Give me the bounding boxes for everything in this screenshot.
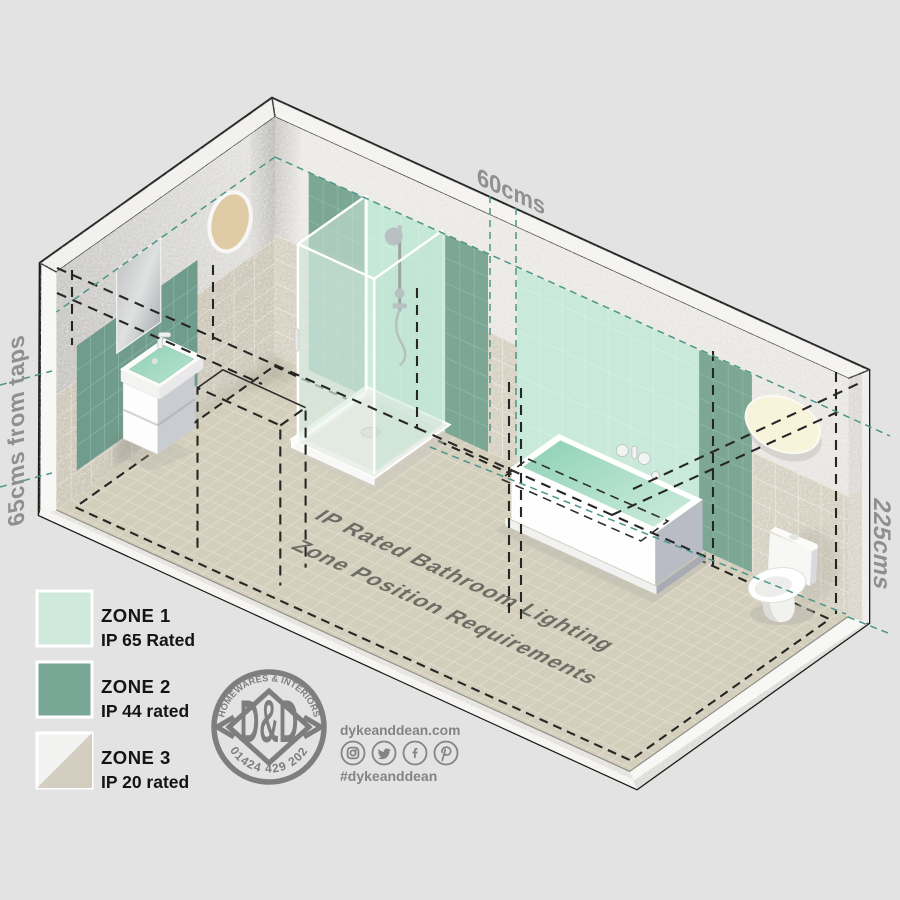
svg-text:IP 20 rated: IP 20 rated [101, 772, 189, 792]
svg-text:ZONE 2: ZONE 2 [101, 676, 171, 697]
svg-text:dykeanddean.com: dykeanddean.com [340, 723, 460, 738]
svg-text:IP 44 rated: IP 44 rated [101, 701, 189, 721]
svg-text:ZONE 3: ZONE 3 [101, 747, 171, 768]
svg-text:IP 65 Rated: IP 65 Rated [101, 630, 195, 650]
svg-text:65cms from taps: 65cms from taps [3, 333, 29, 530]
svg-text:225cms: 225cms [868, 496, 895, 594]
svg-text:ZONE 1: ZONE 1 [101, 605, 171, 626]
svg-text:D&D: D&D [240, 688, 298, 755]
svg-text:#dykeanddean: #dykeanddean [340, 768, 437, 784]
